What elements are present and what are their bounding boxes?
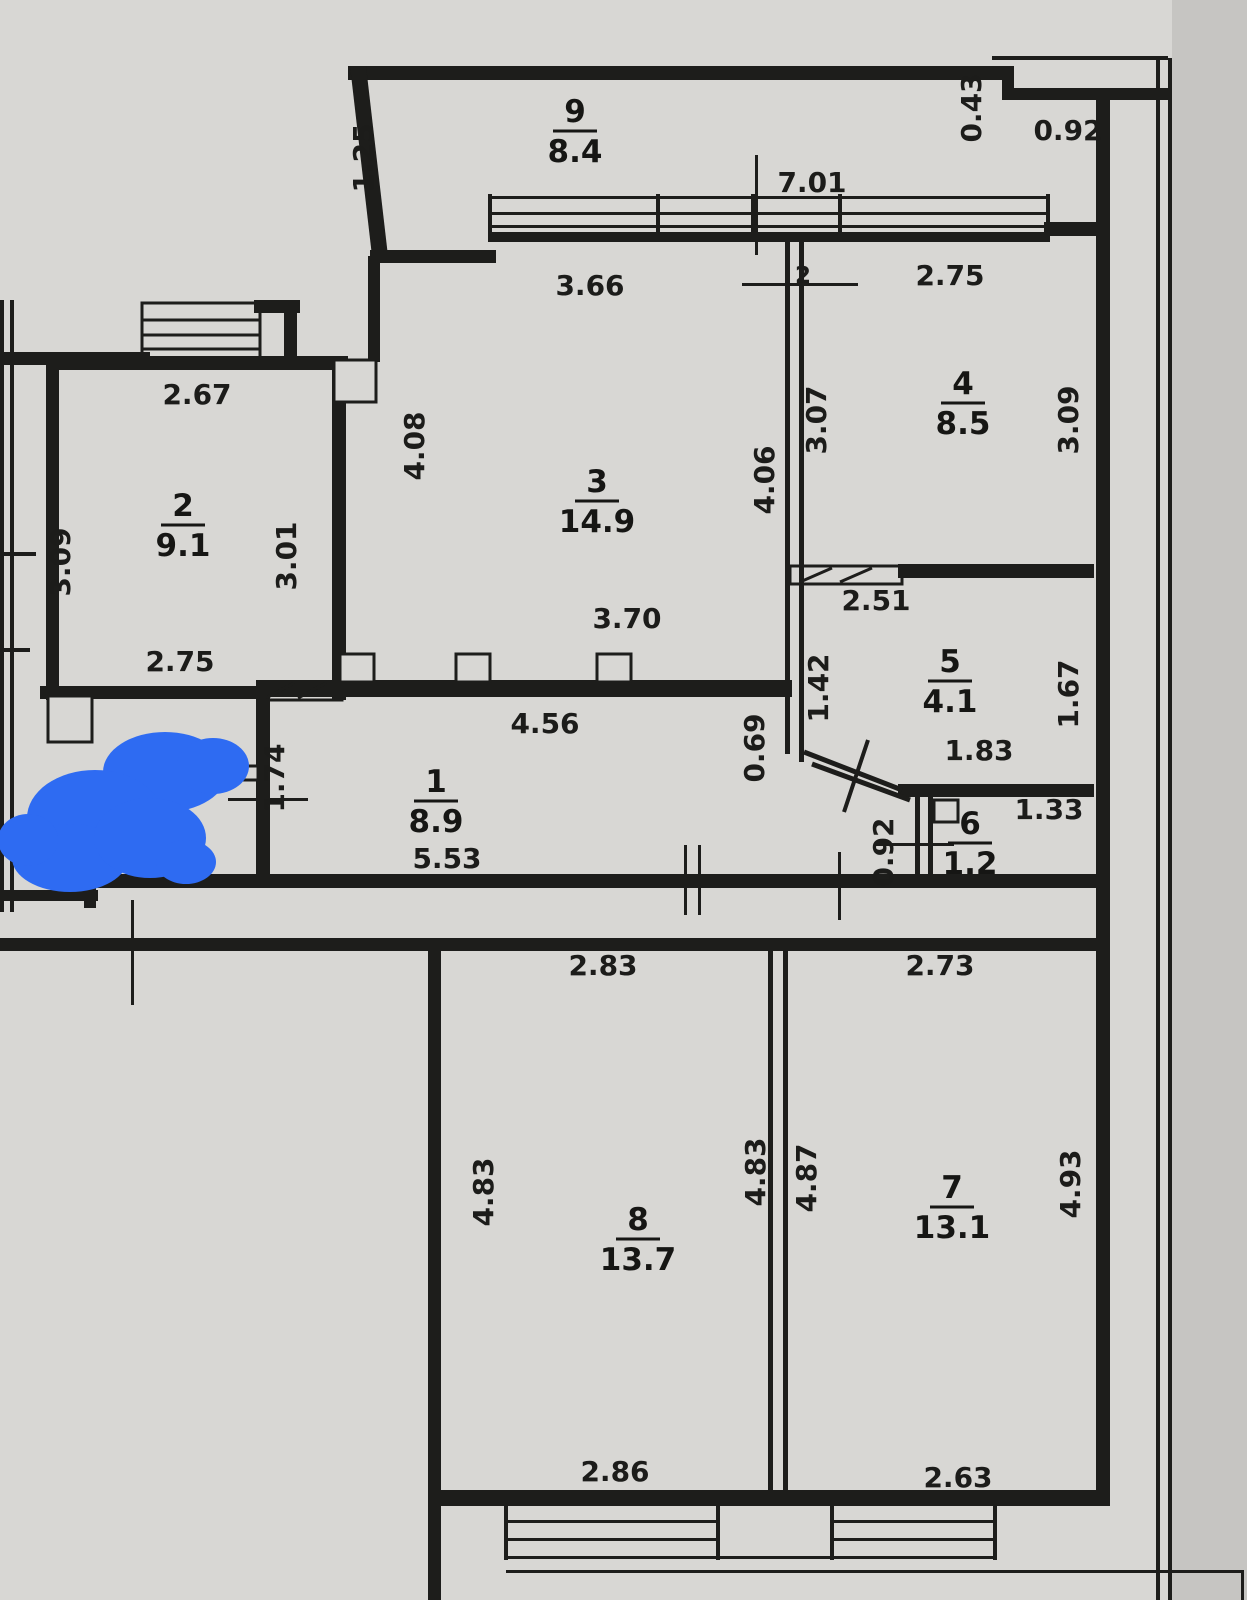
room-number: 6 xyxy=(959,806,981,842)
dimension-label: 0.92 xyxy=(1033,114,1102,147)
dimension-label: 1.74 xyxy=(258,743,291,812)
dimension-label: 2.83 xyxy=(568,949,637,982)
room-area: 1.2 xyxy=(943,846,998,882)
room-number: 7 xyxy=(941,1170,963,1206)
dimension-label: 4.56 xyxy=(510,707,579,740)
dimension-label: 3.07 xyxy=(800,385,833,454)
dimension-label: 3.09 xyxy=(1052,385,1085,454)
room-area: 13.7 xyxy=(600,1242,677,1278)
dimension-label: 2 xyxy=(795,263,811,289)
room-area: 8.9 xyxy=(409,804,464,840)
room-area: 8.5 xyxy=(936,406,991,442)
room-area: 14.9 xyxy=(559,504,636,540)
dimension-label: 1.67 xyxy=(1052,659,1085,728)
dimension-label: 3.66 xyxy=(555,269,624,302)
room-number: 5 xyxy=(939,644,961,680)
dimension-label: 1.42 xyxy=(802,653,835,722)
dimension-label: 7.01 xyxy=(777,166,846,199)
room-area: 9.1 xyxy=(156,528,211,564)
dimension-label: 1.83 xyxy=(944,734,1013,767)
dimension-label: 4.08 xyxy=(398,411,431,480)
dimension-label: 4.83 xyxy=(739,1137,772,1206)
room-area: 4.1 xyxy=(923,684,978,720)
room-number: 4 xyxy=(952,366,974,402)
page-right-margin xyxy=(1172,0,1247,1600)
room-number: 2 xyxy=(172,488,194,524)
dimension-label: 2.63 xyxy=(923,1461,992,1494)
dimension-label: 2.73 xyxy=(905,949,974,982)
dimension-label: 3.70 xyxy=(592,602,661,635)
room-number: 8 xyxy=(627,1202,649,1238)
dimension-label: 3.01 xyxy=(270,521,303,590)
dimension-label: 2.75 xyxy=(145,645,214,678)
dimension-label: 3.09 xyxy=(44,527,77,596)
dimension-label: 0.92 xyxy=(867,817,900,886)
dimension-label: 2.67 xyxy=(162,378,231,411)
dimension-label: 5.53 xyxy=(412,842,481,875)
dimension-label: 0.69 xyxy=(738,713,771,782)
dimension-label: 1.25 xyxy=(347,123,380,192)
dimension-label: 4.06 xyxy=(748,445,781,514)
room-area: 13.1 xyxy=(914,1210,991,1246)
dimension-label: 0.43 xyxy=(955,73,988,142)
floor-plan-drawing: 18.929.1314.948.554.161.2713.1813.798.41… xyxy=(0,0,1247,1600)
room-number: 9 xyxy=(564,94,586,130)
room-number: 1 xyxy=(425,764,447,800)
dimension-label: 2.86 xyxy=(580,1455,649,1488)
dimension-label: 4.93 xyxy=(1054,1149,1087,1218)
floorplan-photo: 18.929.1314.948.554.161.2713.1813.798.41… xyxy=(0,0,1247,1600)
dimension-label: 1.33 xyxy=(1014,793,1083,826)
dimension-label: 4.83 xyxy=(467,1157,500,1226)
room-number: 3 xyxy=(586,464,608,500)
dimension-label: 2.51 xyxy=(841,584,910,617)
dimension-label: 4.87 xyxy=(790,1143,823,1212)
dimension-label: 2.75 xyxy=(915,259,984,292)
room-area: 8.4 xyxy=(548,134,603,170)
